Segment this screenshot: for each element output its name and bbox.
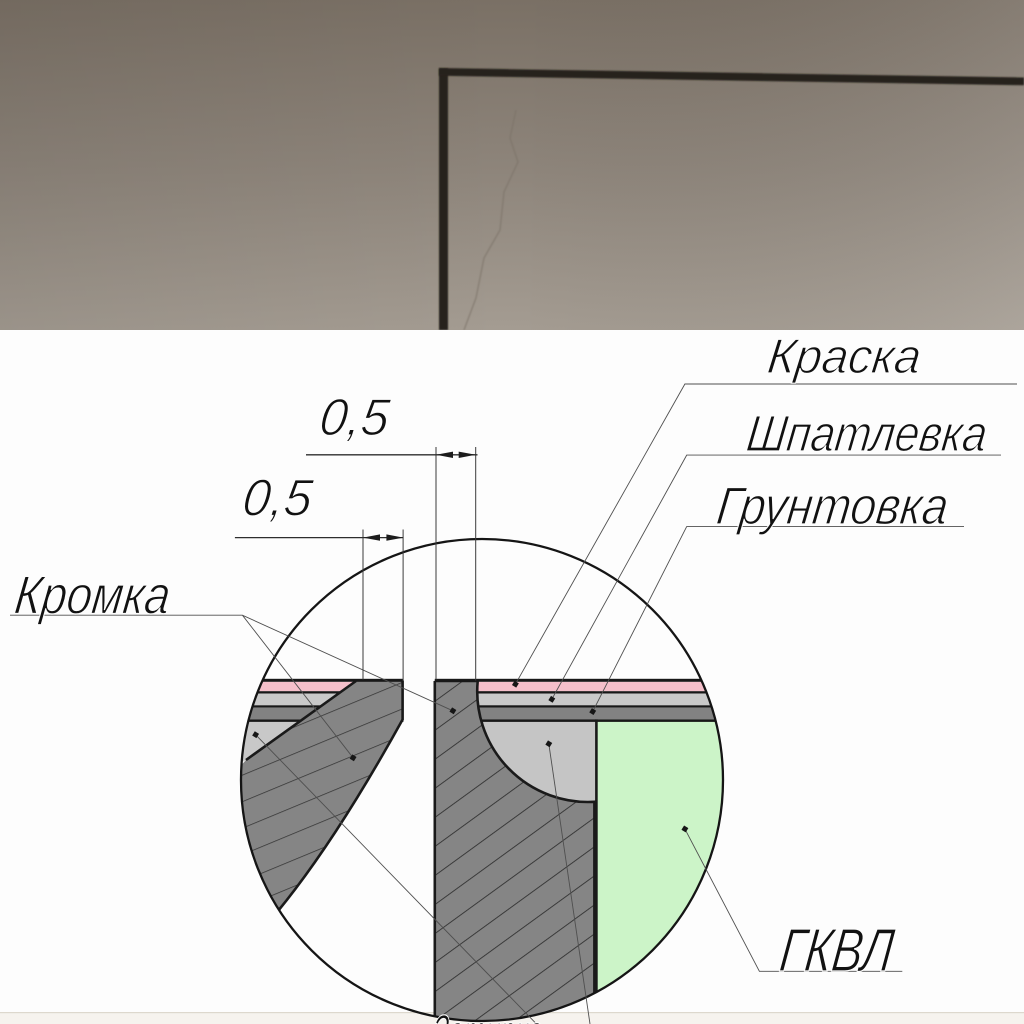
svg-text:Краска: Краска	[765, 329, 925, 384]
svg-text:ГКВЛ: ГКВЛ	[776, 916, 898, 984]
svg-text:0,5: 0,5	[317, 389, 394, 447]
svg-text:Грунтовка: Грунтовка	[714, 477, 952, 536]
svg-text:0,5: 0,5	[240, 470, 317, 528]
svg-text:Затирка: Затирка	[429, 1005, 546, 1024]
svg-text:Кромка: Кромка	[12, 566, 174, 626]
svg-text:Шпатлевка: Шпатлевка	[744, 405, 991, 462]
